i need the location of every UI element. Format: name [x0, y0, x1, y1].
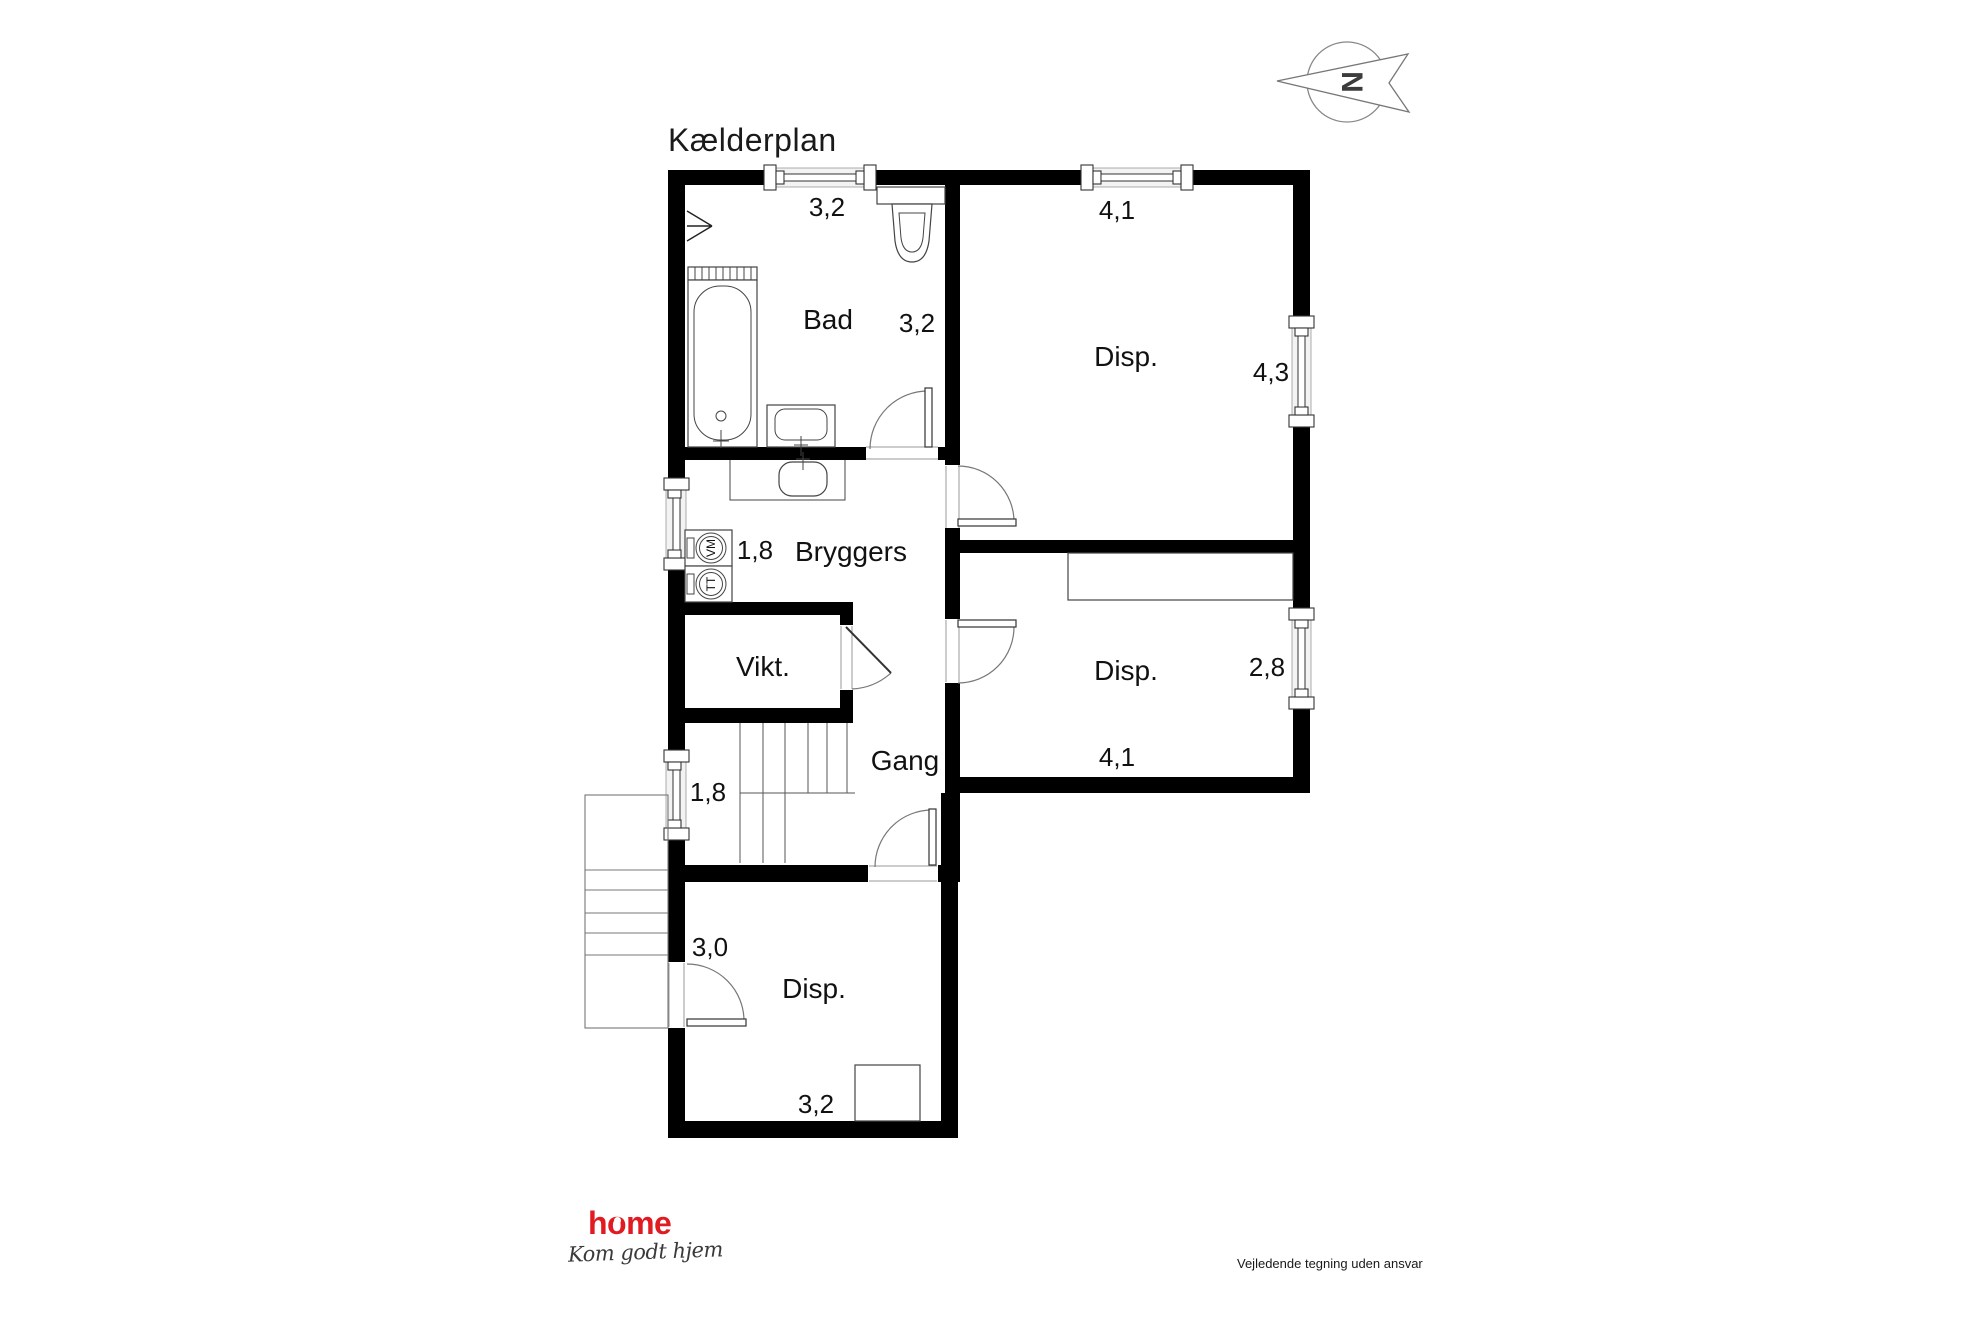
storage-box-disp-bottom [855, 1065, 920, 1121]
door-bad [870, 388, 932, 449]
home-logo: home [588, 1205, 788, 1242]
exterior-stairs [585, 795, 668, 1028]
window-disp-right-lower [1289, 608, 1314, 709]
room-label-disp-top: Disp. [1094, 341, 1158, 372]
labels: 3,2 Bad 3,2 4,1 Disp. 4,3 1,8 Bryggers V… [690, 192, 1289, 1119]
window-disp-right [1289, 316, 1314, 427]
dim-disp-top-width: 4,1 [1099, 195, 1135, 225]
tumble-dryer: TT [685, 566, 732, 602]
door-entrance [687, 964, 746, 1026]
home-logo-text: home [588, 1205, 671, 1242]
room-label-bryggers: Bryggers [795, 536, 907, 567]
shelf-disp-right [1068, 553, 1293, 600]
room-label-vikt: Vikt. [736, 651, 790, 682]
door-disp-top [958, 466, 1016, 526]
room-label-gang: Gang [871, 745, 940, 776]
dim-disp-right-width: 4,1 [1099, 742, 1135, 772]
tumble-dryer-label: TT [704, 576, 718, 591]
dim-disp-top-depth: 4,3 [1253, 357, 1289, 387]
north-label: N [1335, 71, 1368, 93]
floor-plan-page: Kælderplan [0, 0, 1984, 1323]
window-disp-top [1081, 165, 1193, 190]
bathtub [688, 267, 757, 448]
washing-machine-label: VM [704, 539, 718, 557]
dim-gang-window: 1,8 [690, 777, 726, 807]
dim-bad-depth: 3,2 [899, 308, 935, 338]
window-bad-top [764, 165, 876, 190]
washing-machine: VM [685, 530, 732, 566]
toilet [877, 187, 945, 262]
keyhole-icon [614, 1217, 621, 1224]
dim-bad-width: 3,2 [809, 192, 845, 222]
shower-head-icon [687, 211, 712, 241]
door-disp-right [958, 620, 1016, 683]
door-gang [875, 809, 936, 867]
dim-disp-right-depth: 2,8 [1249, 652, 1285, 682]
dim-disp-bottom-width: 3,2 [798, 1089, 834, 1119]
floor-plan-svg: VM TT N 3 [0, 0, 1984, 1323]
interior-stairs [740, 723, 855, 863]
room-label-bad: Bad [803, 304, 853, 335]
compass: N [1277, 42, 1409, 122]
dim-disp-bottom-depth: 3,0 [692, 932, 728, 962]
dim-bryggers-window: 1,8 [737, 535, 773, 565]
room-label-disp-right: Disp. [1094, 655, 1158, 686]
room-label-disp-bottom: Disp. [782, 973, 846, 1004]
disclaimer-text: Vejledende tegning uden ansvar [1237, 1256, 1423, 1271]
